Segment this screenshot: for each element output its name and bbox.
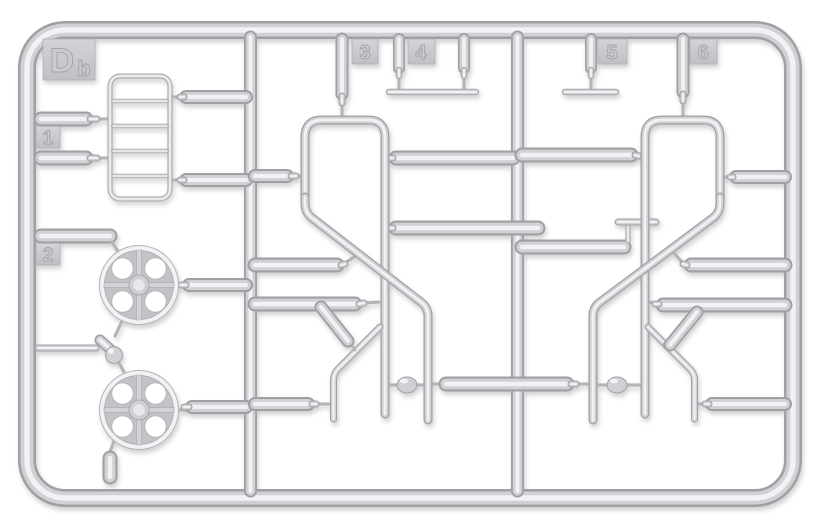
part-tag-6: 6 (690, 39, 717, 64)
part-tag-4: 4 (408, 39, 435, 64)
part-number: 6 (697, 42, 708, 64)
part-tag-3: 3 (352, 39, 378, 64)
part-number: 2 (43, 245, 54, 266)
part-tag-5: 5 (598, 39, 627, 64)
part-number: 5 (606, 42, 617, 64)
sprue-photo: D b 1 2 3 4 5 6 (0, 0, 822, 527)
part-number: 3 (359, 42, 370, 64)
wheel-assembly (38, 242, 246, 477)
gate-letter-sub: b (77, 56, 90, 81)
part-tag-1: 1 (36, 126, 60, 149)
elbow-part (100, 340, 123, 364)
wheel-part-lower (100, 371, 179, 450)
wheel-part-upper (100, 246, 179, 325)
part-number: 4 (415, 42, 427, 64)
middle-tube-frame (255, 120, 588, 420)
part-number: 1 (43, 128, 54, 149)
sprue-body: D b 1 2 3 4 5 6 (27, 30, 793, 498)
part-tag-2: 2 (36, 243, 60, 266)
t-shaped-part (618, 222, 656, 241)
sprue-illustration: D b 1 2 3 4 5 6 (0, 0, 822, 527)
gate-label-plate: D b (43, 39, 95, 81)
grille-part (101, 76, 179, 199)
gate-letter-main: D (50, 42, 75, 80)
right-tube-frame (522, 120, 785, 420)
